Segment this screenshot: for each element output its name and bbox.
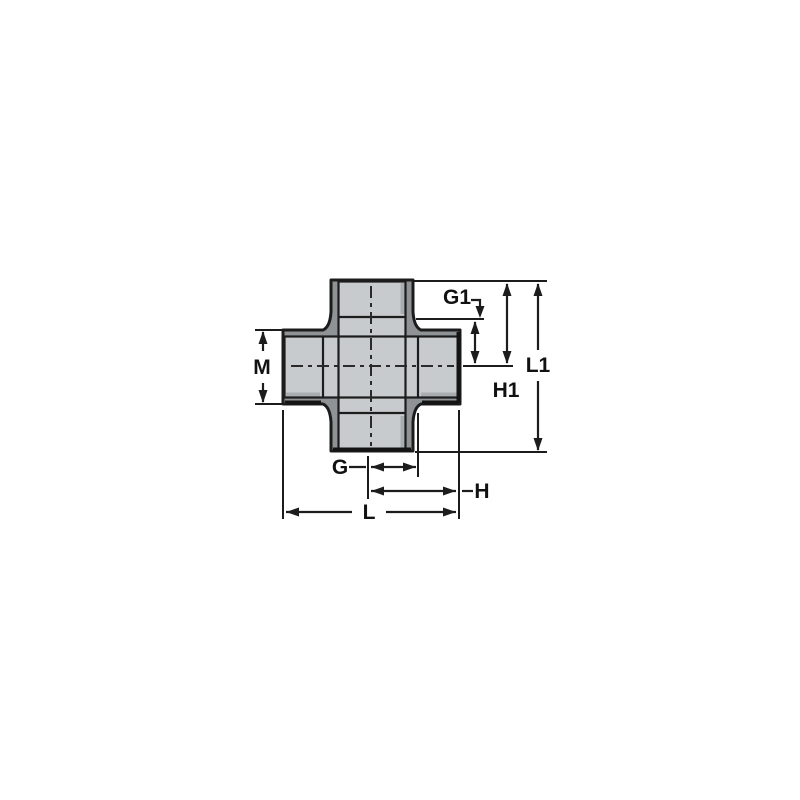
dimension-m: M [253, 330, 286, 404]
g1-label: G1 [443, 286, 471, 309]
cross-fitting-diagram: M G1 H1 [0, 0, 800, 800]
l1-arrow-up-icon [534, 283, 543, 296]
h-label: H [474, 480, 489, 503]
g-label: G [332, 456, 348, 479]
m-arrow-down-icon [259, 390, 268, 403]
h-arrow-left-icon [371, 487, 384, 496]
dimension-l1: L1 [526, 283, 551, 451]
g1-arrow-up-icon [471, 321, 480, 334]
h1-label: H1 [493, 379, 520, 402]
dimension-h: H [371, 480, 490, 503]
g-arrow-right-icon [403, 463, 416, 472]
g-arrow-left-icon [371, 463, 384, 472]
fitting-body [283, 280, 460, 451]
h-arrow-right-icon [443, 487, 456, 496]
l1-label: L1 [526, 354, 551, 377]
technical-drawing-canvas: M G1 H1 [0, 0, 800, 800]
dimension-h1: H1 [493, 283, 520, 402]
h1-arrow-up-icon [503, 283, 512, 296]
l-label: L [363, 501, 376, 524]
l1-arrow-down-icon [534, 438, 543, 451]
h1-arrow-down-icon [503, 351, 512, 364]
g1-arrow-down-icon [471, 351, 480, 364]
l-arrow-left-icon [286, 508, 299, 517]
m-label: M [253, 356, 271, 379]
m-arrow-up-icon [259, 331, 268, 344]
l-arrow-right-icon [443, 508, 456, 517]
g1-leader-arrow-icon [476, 306, 485, 318]
